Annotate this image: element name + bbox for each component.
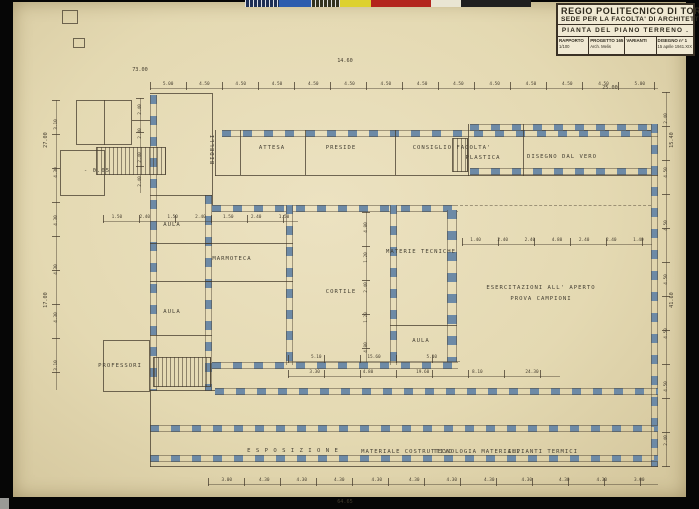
dimension-value: 4.30: [54, 264, 59, 275]
dimension-value: 2.40: [251, 215, 262, 221]
dimension-strip-top-bays: 5.004.504.504.504.504.504.504.504.504.50…: [150, 82, 658, 90]
dimension-value: 1.50: [223, 215, 234, 221]
scale-label: RAPPORTO: [559, 38, 587, 43]
dimension-value: 4.50: [417, 82, 428, 88]
dimension-total: 73.00: [132, 67, 148, 73]
color-bar-segment-navy-ruler: [245, 0, 279, 7]
title-block: REGIO POLITECNICO DI TORINO SEDE PER LA …: [556, 3, 695, 56]
dimension-strip-inner-courtyard: 4.801.202.401.204.80: [362, 212, 370, 362]
drawing-number-label: DISEGNO n° 1: [658, 38, 692, 43]
dimension-value: 4.50: [489, 82, 500, 88]
dimension-strip-inner-right: 1.402.402.404.802.402.401.40: [462, 238, 652, 246]
dimension-value: 4.30: [296, 478, 307, 484]
dimension-value: 4.30: [559, 478, 570, 484]
title-block-table: RAPPORTO 1/100 PROGETTO 165 Arch. Melis …: [558, 37, 693, 54]
dimension-total: 41.60: [669, 292, 675, 308]
dimension-value: 4.30: [409, 478, 420, 484]
dimension-value: 5.10: [311, 355, 322, 361]
color-bar-segment-red: [371, 0, 431, 7]
dimension-value: 2.40: [664, 435, 669, 446]
dimension-strip-bottom-bays: 3.004.304.304.304.304.304.304.304.304.30…: [208, 478, 658, 486]
dimension-value: 4.30: [54, 312, 59, 323]
dimension-value: 4.30: [596, 478, 607, 484]
dimension-value: 4.30: [371, 478, 382, 484]
dimension-value: 2.40: [525, 238, 536, 244]
dimension-value: 24.30: [525, 370, 538, 376]
color-calibration-bar: [245, 0, 531, 7]
color-bar-segment-blue: [279, 0, 311, 7]
dimension-value: 4.50: [381, 82, 392, 88]
dimension-value: 4.30: [334, 478, 345, 484]
dimension-value: 4.50: [664, 381, 669, 392]
project-label: PROGETTO 165: [590, 38, 623, 43]
dimension-value: 2.40: [195, 215, 206, 221]
drawing-title: REGIO POLITECNICO DI TORINO: [561, 6, 691, 16]
dimension-value: 4.50: [664, 167, 669, 178]
dimension-value: 4.80: [363, 370, 374, 376]
dimension-value: 5.00: [635, 82, 646, 88]
dimension-value: 1.20: [364, 252, 369, 263]
dimension-value: 8.10: [472, 370, 483, 376]
color-bar-segment-cream: [431, 0, 461, 7]
scale-cell: RAPPORTO 1/100: [558, 37, 589, 54]
dimension-value: 2.40: [497, 238, 508, 244]
dimension-value: 2.40: [579, 238, 590, 244]
dimension-value: 4.50: [664, 221, 669, 232]
dimension-value: 2.40: [364, 282, 369, 293]
dimension-total: 64.65: [337, 499, 353, 505]
dimension-value: 4.30: [54, 216, 59, 227]
dimension-value: 3.10: [54, 119, 59, 130]
dimension-value: 4.50: [235, 82, 246, 88]
color-bar-segment-black: [461, 0, 531, 7]
dimension-total: 15.40: [669, 132, 675, 148]
variants-label: VARIANTI: [626, 38, 654, 43]
variants-cell: VARIANTI: [625, 37, 656, 54]
dimension-value: 2.40: [138, 176, 143, 187]
dimension-value: 4.30: [259, 478, 270, 484]
dimension-value: 4.50: [272, 82, 283, 88]
dimension-value: 4.80: [552, 238, 563, 244]
dimension-value: 2.40: [606, 238, 617, 244]
dimension-value: 5.00: [163, 82, 174, 88]
dimension-value: 1.50: [112, 215, 123, 221]
dimensions-layer: 5.004.504.504.504.504.504.504.504.504.50…: [0, 0, 699, 509]
dimension-strip-left-inner: 2.402.402.402.40: [136, 98, 144, 193]
dimension-value: 4.30: [446, 478, 457, 484]
dimension-value: 15.60: [367, 355, 380, 361]
dimension-value: 1.20: [364, 312, 369, 323]
dimension-value: 4.50: [526, 82, 537, 88]
dimension-value: 4.30: [54, 167, 59, 178]
dimension-value: 4.50: [199, 82, 210, 88]
dimension-value: 4.50: [664, 274, 669, 285]
title-block-header: REGIO POLITECNICO DI TORINO SEDE PER LA …: [558, 5, 693, 25]
dimension-value: 2.40: [138, 128, 143, 139]
dimension-strip-left-outer: 3.104.304.304.304.303.10: [52, 100, 60, 390]
dimension-value: 3.00: [634, 478, 645, 484]
dimension-value: 4.30: [521, 478, 532, 484]
dimension-value: 1.40: [633, 238, 644, 244]
dimension-value: 1.50: [167, 215, 178, 221]
dimension-value: 4.80: [364, 222, 369, 233]
scale-value: 1/100: [559, 44, 587, 49]
dimension-value: 4.50: [453, 82, 464, 88]
dimension-value: 4.50: [344, 82, 355, 88]
plan-name: PIANTA DEL PIANO TERRENO .: [558, 25, 693, 37]
dimension-value: 3.10: [54, 361, 59, 372]
color-bar-segment-yellow: [340, 0, 371, 7]
dimension-value: 3.30: [309, 370, 320, 376]
dimension-value: 2.40: [138, 105, 143, 116]
drawing-number-cell: DISEGNO n° 1 15 aprile 1941.XIX: [657, 37, 693, 54]
dimension-total: 27.00: [43, 132, 49, 148]
dimension-value: 5.10: [426, 355, 437, 361]
dimension-value: 2.40: [139, 215, 150, 221]
dimension-strip-right-outer: 2.404.504.504.504.504.502.40: [662, 92, 670, 467]
dimension-value: 4.80: [364, 342, 369, 353]
scanned-floor-plan-photo: ATTESAPRESIDECONSIGLIO FACOLTA'PLASTICAD…: [0, 0, 699, 509]
dimension-value: 4.50: [308, 82, 319, 88]
dimension-value: 2.40: [138, 152, 143, 163]
dimension-strip-inner-aula: 5.1015.605.10: [288, 355, 460, 363]
dimension-strip-inner-left-wing: 1.502.401.502.401.502.401.50: [103, 215, 298, 223]
dimension-strip-inner-lower: 3.304.8019.608.1024.30: [288, 370, 560, 378]
scan-corner-artifact: [0, 498, 9, 509]
dimension-value: 1.40: [470, 238, 481, 244]
dimension-value: 19.60: [416, 370, 429, 376]
dimension-value: 3.00: [221, 478, 232, 484]
dimension-value: 1.50: [279, 215, 290, 221]
dimension-total: 25.00: [602, 85, 618, 91]
dimension-total: 17.00: [43, 292, 49, 308]
project-cell: PROGETTO 165 Arch. Melis: [589, 37, 625, 54]
drawing-date: 15 aprile 1941.XIX: [658, 44, 692, 49]
color-bar-segment-olive-ruler: [311, 0, 340, 7]
dimension-value: 2.40: [664, 113, 669, 124]
dimension-value: 4.50: [562, 82, 573, 88]
dimension-value: 4.30: [484, 478, 495, 484]
dimension-total: 14.60: [337, 58, 353, 64]
project-architect: Arch. Melis: [590, 44, 623, 49]
drawing-subtitle: SEDE PER LA FACOLTA' DI ARCHITETTURA.: [561, 16, 691, 23]
dimension-value: 4.50: [664, 328, 669, 339]
